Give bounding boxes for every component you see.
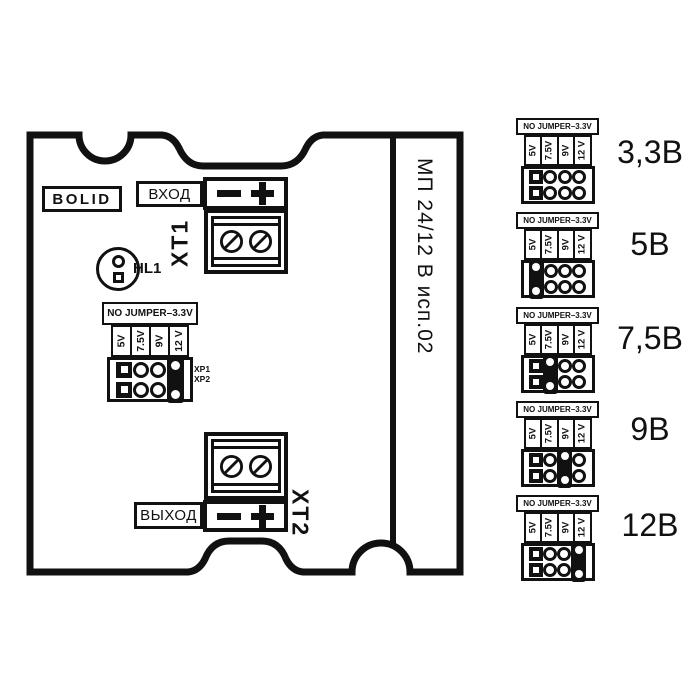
pin-column [558,359,572,389]
jumper-pin-grid [521,355,595,393]
xp1-label: XP1 [194,365,210,374]
jumper-cap [543,354,558,394]
jumper-voltage-labels: 5V7.5V9V12 V [524,229,592,260]
pin-column [543,547,557,577]
round-pin [543,563,557,577]
xt1-screws [214,226,278,257]
minus-icon [217,513,241,520]
round-pin [572,453,586,467]
jumper-voltage-labels: 5V7.5V9V12 V [111,325,189,357]
terminal-clamp-bar [214,219,278,226]
jumper-pin [532,287,540,295]
square-pad-pin [529,359,543,373]
jumper-pin-grid [521,543,595,581]
round-pin [543,547,557,561]
round-pin [543,469,557,483]
jumper-voltage-labels: 5V7.5V9V12 V [524,324,592,355]
jumper-voltage-labels: 5V7.5V9V12 V [524,512,592,543]
jumper-header-label: NO JUMPER–3.3V [516,118,599,135]
jumper-pin-grid: XP1 XP2 [107,357,193,402]
voltage-column-label: 12 V [573,135,592,166]
pin-column [116,362,132,398]
square-pad-pin [116,382,132,398]
jumper-cap [571,542,586,582]
brand-logo-text: BOLID [52,191,111,208]
round-pin [543,453,557,467]
round-pin [572,469,586,483]
jumper-pin-grid [521,166,595,204]
xt1-label: XT1 [167,212,193,274]
jumper-pin [532,263,540,271]
round-pin [133,362,149,378]
screw-icon [219,454,244,479]
pin-column [150,362,166,398]
voltage-label-7v5: 7,5В [600,322,700,354]
terminal-clamp-bar [214,257,278,264]
round-pin [544,264,558,278]
square-pad-pin [529,186,543,200]
round-pin [543,170,557,184]
jumper-header-label: NO JUMPER–3.3V [516,212,599,229]
jumper-cap [167,357,184,403]
xt2-terminal-block [204,432,288,500]
jumper-cap [557,448,572,488]
round-pin [558,186,572,200]
jumper-pin-grid [521,260,595,298]
pin-column [529,359,543,389]
plus-icon [251,182,274,205]
pin-column [557,547,571,577]
jumper-header-label: NO JUMPER–3.3V [516,401,599,418]
voltage-column-label: 12 V [573,418,592,449]
round-pin [150,382,166,398]
voltage-label-9v: 9В [600,413,700,445]
led-circle-icon [112,255,125,268]
voltage-column-label: 12 V [573,512,592,543]
pin-column [543,170,557,200]
jumper-pin [171,390,180,399]
board-jumper-block: NO JUMPER–3.3V 5V7.5V9V12 V XP1 XP2 [104,302,196,402]
round-pin [572,280,586,294]
pin-column [572,170,586,200]
terminal-clamp-bar [214,483,278,490]
plus-icon [251,505,274,528]
input-polarity-box [203,177,288,210]
pin-column [572,264,586,294]
round-pin [558,264,572,278]
voltage-column-label: 12 V [168,325,189,357]
xp2-label: XP2 [194,375,210,384]
jumper-pin [546,358,554,366]
xt2-label: XT2 [287,484,313,542]
jumper-pin [561,476,569,484]
input-label: ВХОД [148,186,190,203]
jumper-header-label: NO JUMPER–3.3V [516,307,599,324]
pin-column [544,264,558,294]
round-pin [543,186,557,200]
voltage-column-label: 12 V [573,324,592,355]
jumper-diagram-7v5: NO JUMPER–3.3V 5V7.5V9V12 V [518,307,597,393]
pin-column [558,264,572,294]
jumper-voltage-labels: 5V7.5V9V12 V [524,135,592,166]
minus-icon [217,190,241,197]
round-pin [557,563,571,577]
screw-icon [248,454,273,479]
round-pin [558,280,572,294]
square-pad-pin [529,469,543,483]
voltage-column-label: 7.5V [130,325,151,357]
pin-column [529,170,543,200]
pin-column [133,362,149,398]
round-pin [558,375,572,389]
round-pin [572,375,586,389]
pin-column [572,453,586,483]
square-pad-pin [529,547,543,561]
jumper-pin [171,361,180,370]
square-pad-pin [529,170,543,184]
jumper-diagram-12v: NO JUMPER–3.3V 5V7.5V9V12 V [518,495,597,581]
jumper-voltage-labels: 5V7.5V9V12 V [524,418,592,449]
round-pin [133,382,149,398]
voltage-column-label: 5V [111,325,132,357]
round-pin [572,186,586,200]
xt1-terminal-inner [211,216,281,267]
module-name-label: МП 24/12 В исп.02 [404,140,444,372]
output-polarity-box [203,500,288,532]
round-pin [558,359,572,373]
square-pad-pin [529,563,543,577]
output-label-box: ВЫХОД [134,502,203,529]
xt2-terminal-inner [211,439,281,493]
xt2-screws [214,449,278,483]
voltage-label-3v3: 3,3В [600,136,700,168]
page: BOLID ВХОД XT1 [0,0,700,700]
jumper-cap [529,259,544,299]
voltage-label-5v: 5В [600,228,700,260]
round-pin [557,547,571,561]
pin-column [572,359,586,389]
jumper-pin [575,570,583,578]
round-pin [544,280,558,294]
pin-column [529,453,543,483]
output-label: ВЫХОД [140,507,197,524]
round-pin [150,362,166,378]
jumper-pin [575,546,583,554]
led-square-pad-icon [113,272,124,283]
voltage-column-label: 12 V [573,229,592,260]
round-pin [572,264,586,278]
jumper-diagram-9v: NO JUMPER–3.3V 5V7.5V9V12 V [518,401,597,487]
pin-column [529,547,543,577]
jumper-pin [546,382,554,390]
screw-icon [248,229,273,254]
xt1-terminal-block [204,209,288,274]
square-pad-pin [529,375,543,389]
pin-column [558,170,572,200]
pin-column [543,453,557,483]
round-pin [572,170,586,184]
brand-logo: BOLID [42,186,122,212]
input-label-box: ВХОД [136,181,203,207]
round-pin [572,359,586,373]
round-pin [558,170,572,184]
voltage-column-label: 9V [149,325,170,357]
jumper-pin [561,452,569,460]
terminal-clamp-bar [214,442,278,449]
jumper-pin-grid [521,449,595,487]
square-pad-pin [116,362,132,378]
jumper-header-label: NO JUMPER–3.3V [516,495,599,512]
jumper-diagram-3v3: NO JUMPER–3.3V 5V7.5V9V12 V [518,118,597,204]
jumper-diagram-5v: NO JUMPER–3.3V 5V7.5V9V12 V [518,212,597,298]
screw-icon [219,229,244,254]
hl1-label: HL1 [133,260,161,277]
square-pad-pin [529,453,543,467]
jumper-header-label: NO JUMPER–3.3V [102,302,198,325]
voltage-label-12v: 12В [600,509,700,541]
